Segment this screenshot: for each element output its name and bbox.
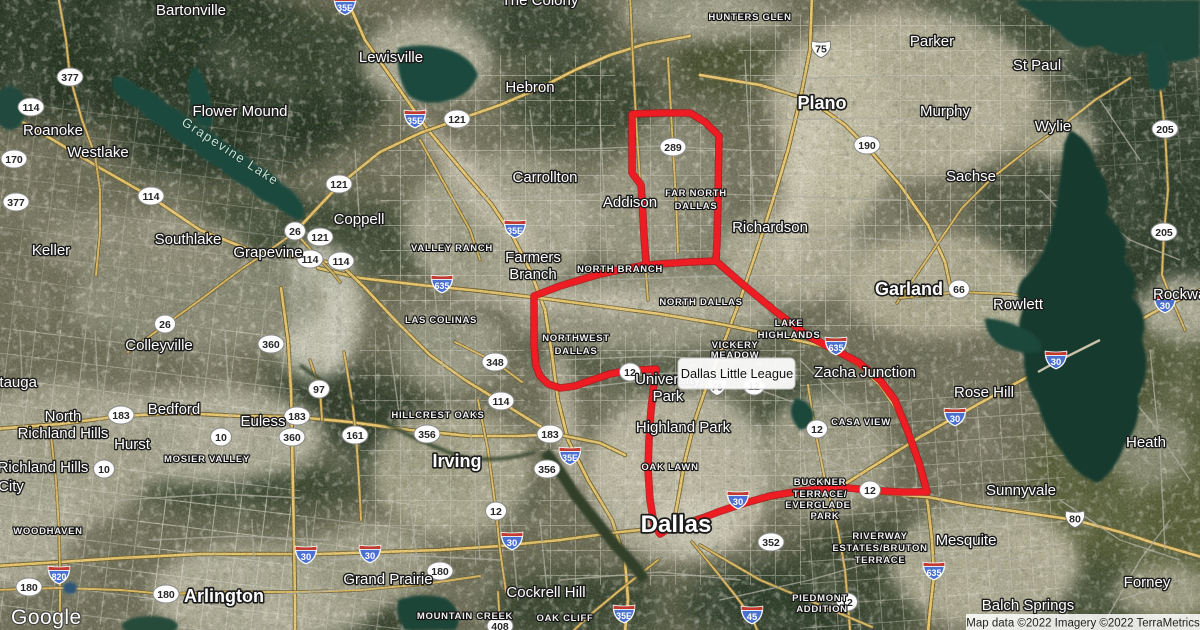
svg-text:408: 408 xyxy=(491,621,509,630)
svg-text:114: 114 xyxy=(143,191,160,203)
svg-text:635: 635 xyxy=(927,568,942,578)
svg-text:170: 170 xyxy=(5,154,23,166)
svg-text:Rockwall: Rockwall xyxy=(1153,286,1200,303)
svg-text:Southlake: Southlake xyxy=(155,231,222,248)
svg-text:35E: 35E xyxy=(616,611,632,621)
svg-text:121: 121 xyxy=(311,232,329,244)
svg-text:DALLAS: DALLAS xyxy=(675,201,718,212)
svg-text:Bartonville: Bartonville xyxy=(156,2,226,19)
svg-text:114: 114 xyxy=(23,102,40,114)
svg-text:Wylie: Wylie xyxy=(1035,118,1072,135)
svg-text:80: 80 xyxy=(1069,514,1081,526)
svg-text:Heath: Heath xyxy=(1126,434,1166,451)
svg-text:114: 114 xyxy=(302,254,319,266)
svg-text:Euless: Euless xyxy=(240,413,285,430)
svg-text:Grand Prairie: Grand Prairie xyxy=(343,571,432,588)
svg-text:Richland Hills: Richland Hills xyxy=(0,459,88,476)
svg-text:Richland Hills: Richland Hills xyxy=(18,425,109,442)
svg-text:Cockrell Hill: Cockrell Hill xyxy=(506,584,585,601)
svg-text:161: 161 xyxy=(346,430,364,442)
svg-text:26: 26 xyxy=(159,319,171,331)
svg-text:TERRACE/: TERRACE/ xyxy=(793,489,847,500)
svg-text:205: 205 xyxy=(1156,124,1174,136)
svg-text:TERRACE: TERRACE xyxy=(855,555,906,566)
svg-text:Garland: Garland xyxy=(875,279,943,299)
svg-text:Keller: Keller xyxy=(32,242,70,259)
svg-text:180: 180 xyxy=(20,582,38,594)
svg-text:HUNTERS GLEN: HUNTERS GLEN xyxy=(708,12,791,23)
svg-text:Park: Park xyxy=(653,388,684,405)
svg-text:Highland Park: Highland Park xyxy=(636,419,731,436)
svg-text:Balch Springs: Balch Springs xyxy=(982,597,1075,614)
svg-text:BUCKNER: BUCKNER xyxy=(794,477,846,488)
svg-text:356: 356 xyxy=(538,464,556,476)
svg-text:66: 66 xyxy=(953,284,965,296)
svg-text:12: 12 xyxy=(811,424,823,436)
svg-text:FAR NORTH: FAR NORTH xyxy=(665,188,727,199)
svg-text:PIEDMONT: PIEDMONT xyxy=(792,593,848,604)
svg-text:30: 30 xyxy=(301,551,311,562)
svg-text:LAKE: LAKE xyxy=(775,318,804,329)
svg-text:35E: 35E xyxy=(337,3,353,13)
svg-text:Hebron: Hebron xyxy=(505,79,554,96)
svg-text:352: 352 xyxy=(762,537,780,549)
svg-text:ADDITION: ADDITION xyxy=(796,604,848,615)
svg-text:121: 121 xyxy=(330,179,348,191)
svg-text:RIVERWAY: RIVERWAY xyxy=(852,531,907,542)
svg-text:OAK LAWN: OAK LAWN xyxy=(641,462,698,473)
svg-text:atauga: atauga xyxy=(0,374,38,391)
svg-text:Sunnyvale: Sunnyvale xyxy=(986,482,1056,499)
svg-text:183: 183 xyxy=(112,410,130,422)
svg-text:Westlake: Westlake xyxy=(67,144,128,161)
svg-text:Mesquite: Mesquite xyxy=(936,532,997,549)
svg-text:820: 820 xyxy=(52,572,67,582)
svg-text:635: 635 xyxy=(435,281,450,291)
svg-text:30: 30 xyxy=(733,496,743,507)
svg-text:114: 114 xyxy=(333,256,350,268)
svg-text:Forney: Forney xyxy=(1124,574,1171,591)
svg-text:348: 348 xyxy=(486,357,504,369)
svg-text:Farmers: Farmers xyxy=(505,249,561,266)
svg-text:Zacha Junction: Zacha Junction xyxy=(814,364,916,381)
svg-text:377: 377 xyxy=(61,72,79,84)
svg-text:Google: Google xyxy=(11,606,82,629)
svg-text:HILLCREST OAKS: HILLCREST OAKS xyxy=(391,410,484,421)
svg-text:Arlington: Arlington xyxy=(184,586,264,606)
svg-text:Hurst: Hurst xyxy=(114,436,151,453)
svg-text:St Paul: St Paul xyxy=(1013,57,1061,74)
svg-text:289: 289 xyxy=(664,142,682,154)
svg-text:356: 356 xyxy=(418,429,436,441)
svg-text:635: 635 xyxy=(829,343,844,353)
svg-text:Dallas Little League: Dallas Little League xyxy=(681,366,793,381)
svg-text:26: 26 xyxy=(289,226,301,238)
svg-text:360: 360 xyxy=(283,432,301,444)
svg-text:DALLAS: DALLAS xyxy=(555,346,598,357)
svg-text:Coppell: Coppell xyxy=(334,211,385,228)
svg-text:Rose Hill: Rose Hill xyxy=(954,384,1014,401)
svg-text:12: 12 xyxy=(864,485,876,497)
svg-text:Irving: Irving xyxy=(432,451,481,471)
svg-text:205: 205 xyxy=(1155,227,1173,239)
svg-text:Colleyville: Colleyville xyxy=(125,337,193,354)
svg-text:EVERGLADE: EVERGLADE xyxy=(785,500,850,511)
svg-text:35E: 35E xyxy=(562,453,578,463)
svg-text:CASA VIEW: CASA VIEW xyxy=(831,417,891,428)
svg-text:Sachse: Sachse xyxy=(946,168,996,185)
svg-text:NORTH BRANCH: NORTH BRANCH xyxy=(577,264,663,275)
svg-text:97: 97 xyxy=(313,384,325,396)
svg-text:183: 183 xyxy=(541,429,559,441)
svg-text:377: 377 xyxy=(7,197,25,209)
svg-text:10: 10 xyxy=(98,464,110,476)
svg-text:Branch: Branch xyxy=(509,266,557,283)
svg-text:Grapevine: Grapevine xyxy=(233,244,302,261)
svg-text:360: 360 xyxy=(262,339,280,351)
svg-text:30: 30 xyxy=(950,413,960,424)
svg-text:NORTH DALLAS: NORTH DALLAS xyxy=(659,297,742,308)
svg-text:North: North xyxy=(45,408,82,425)
svg-text:Map data ©2022 Imagery ©2022 T: Map data ©2022 Imagery ©2022 TerraMetric… xyxy=(966,618,1200,630)
svg-text:Roanoke: Roanoke xyxy=(23,122,83,139)
svg-text:Plano: Plano xyxy=(797,93,846,113)
svg-text:OAK CLIFF: OAK CLIFF xyxy=(537,613,594,624)
svg-text:Parker: Parker xyxy=(910,33,954,50)
svg-text:180: 180 xyxy=(157,589,175,601)
svg-text:Lewisville: Lewisville xyxy=(359,49,423,66)
svg-text:LAS COLINAS: LAS COLINAS xyxy=(405,315,477,326)
svg-text:75: 75 xyxy=(815,44,827,56)
svg-text:MOSIER VALLEY: MOSIER VALLEY xyxy=(164,454,250,465)
svg-text:190: 190 xyxy=(858,140,876,152)
svg-text:WOODHAVEN: WOODHAVEN xyxy=(13,526,82,537)
svg-text:City: City xyxy=(0,478,24,495)
svg-text:30: 30 xyxy=(365,550,375,561)
svg-text:Rowlett: Rowlett xyxy=(993,296,1044,313)
svg-text:VALLEY RANCH: VALLEY RANCH xyxy=(411,243,493,254)
svg-text:180: 180 xyxy=(431,566,449,578)
svg-text:45: 45 xyxy=(747,611,757,622)
svg-text:121: 121 xyxy=(448,114,466,126)
svg-text:Murphy: Murphy xyxy=(920,103,971,120)
svg-text:12: 12 xyxy=(490,506,502,518)
svg-text:HIGHLANDS: HIGHLANDS xyxy=(758,330,821,341)
svg-text:30: 30 xyxy=(507,537,517,548)
svg-text:NORTHWEST: NORTHWEST xyxy=(542,333,610,344)
svg-text:Dallas: Dallas xyxy=(641,511,712,538)
svg-text:35E: 35E xyxy=(507,226,523,236)
svg-text:10: 10 xyxy=(215,432,227,444)
svg-text:Bedford: Bedford xyxy=(148,401,201,418)
svg-text:183: 183 xyxy=(288,411,306,423)
svg-text:30: 30 xyxy=(1051,356,1061,367)
svg-text:35E: 35E xyxy=(407,116,423,126)
svg-text:Carrollton: Carrollton xyxy=(512,169,577,186)
svg-text:MOUNTAIN CREEK: MOUNTAIN CREEK xyxy=(417,611,513,622)
svg-text:ESTATES/BRUTON: ESTATES/BRUTON xyxy=(832,543,927,554)
svg-text:Addison: Addison xyxy=(603,194,657,211)
svg-text:Flower Mound: Flower Mound xyxy=(192,103,287,120)
svg-text:114: 114 xyxy=(493,396,510,408)
svg-text:PARK: PARK xyxy=(810,511,839,522)
svg-text:The Colony: The Colony xyxy=(502,0,579,9)
svg-text:Richardson: Richardson xyxy=(732,219,808,236)
